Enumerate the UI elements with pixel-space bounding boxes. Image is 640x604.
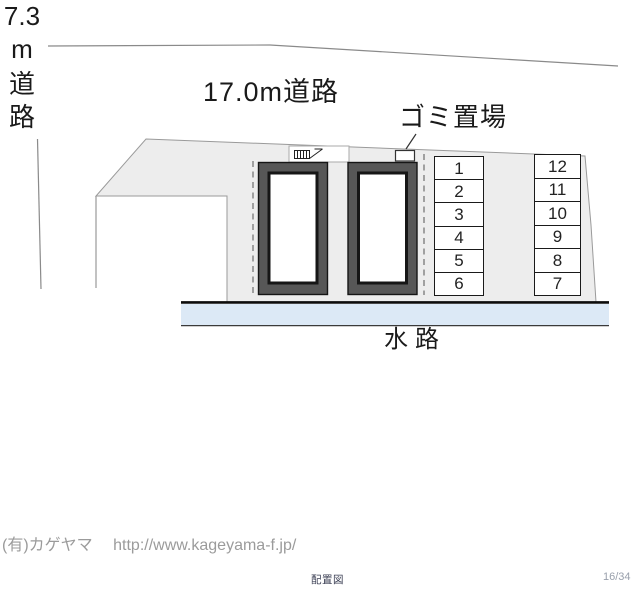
parking-space-1: 1: [435, 157, 483, 180]
parking-space-10: 10: [535, 202, 580, 226]
waterway-label: 水路: [384, 328, 446, 352]
page-indicator: 16/34: [603, 571, 631, 583]
parking-space-8: 8: [535, 249, 580, 273]
parcel-outline: [96, 139, 596, 302]
footer-url: http://www.kageyama-f.jp/: [113, 537, 296, 554]
building-1-interior: [269, 173, 317, 283]
footer-credit: (有)カゲヤマ http://www.kageyama-f.jp/: [2, 531, 296, 555]
footer-company-name: (有)カゲヤマ: [2, 537, 93, 554]
parking-table-left: 1 2 3 4 5 6: [434, 156, 484, 296]
waterway-band: [181, 304, 609, 325]
building-2-interior: [359, 173, 407, 283]
garbage-area-label: ゴミ置場: [399, 104, 507, 130]
road-left-edge-line: [38, 139, 42, 289]
site-plan-page: 17.0m道路 7.3 m 道 路 ゴミ置場 水路 1 2 3 4 5 6 12…: [0, 0, 640, 604]
garbage-box-icon: [396, 151, 415, 162]
parking-space-2: 2: [435, 180, 483, 203]
parking-space-9: 9: [535, 226, 580, 250]
parking-space-12: 12: [535, 155, 580, 179]
parking-space-3: 3: [435, 203, 483, 226]
parking-space-4: 4: [435, 227, 483, 250]
parking-space-5: 5: [435, 250, 483, 273]
garbage-pointer-line: [406, 134, 416, 149]
parking-space-6: 6: [435, 273, 483, 295]
road-top-label: 17.0m道路: [203, 79, 339, 106]
parking-space-11: 11: [535, 179, 580, 203]
page-caption: 配置図: [311, 572, 344, 587]
parking-table-right: 12 11 10 9 8 7: [534, 154, 581, 296]
road-top-edge-line: [48, 45, 618, 66]
parking-space-7: 7: [535, 273, 580, 296]
